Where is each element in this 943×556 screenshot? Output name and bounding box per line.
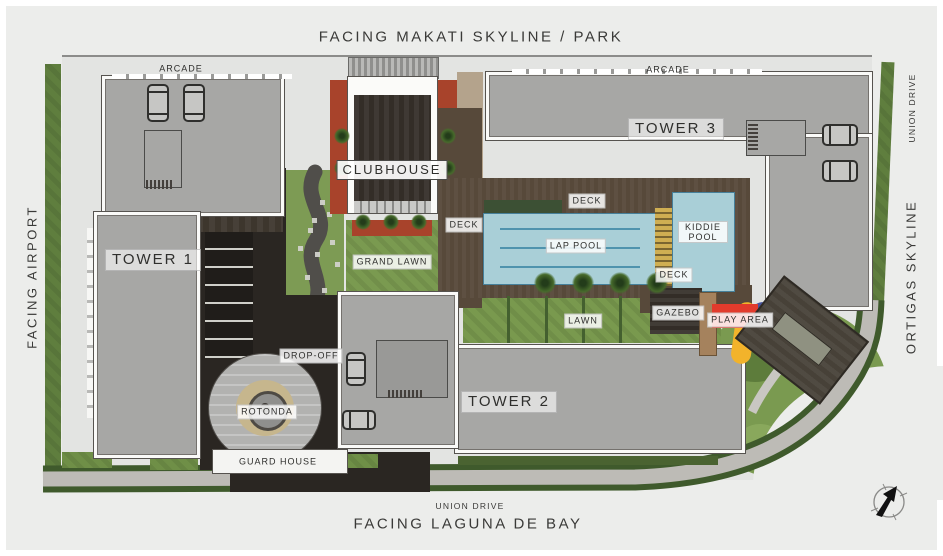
clubhouse-steps (354, 201, 431, 213)
ortigas-skyline-label: ORTIGAS SKYLINE (904, 200, 919, 354)
vehicle-icon (342, 410, 376, 430)
parking-stalls (205, 232, 253, 358)
tree-icon (411, 214, 427, 230)
lap-pool-label: LAP POOL (546, 239, 606, 254)
hedge-south (458, 456, 718, 465)
tree-icon (383, 214, 399, 230)
tower1-balcony-ticks (87, 228, 94, 418)
kiddie-pool-label: KIDDIE POOL (678, 221, 728, 243)
tree-icon (440, 128, 456, 144)
deck-south-label: DECK (655, 268, 692, 283)
pool-planter (484, 200, 562, 213)
union-drive-east-label: UNION DRIVE (907, 74, 917, 143)
lawn-label: LAWN (564, 314, 602, 329)
hedge (545, 296, 548, 343)
vehicle-icon (346, 352, 366, 386)
clubhouse-label: CLUBHOUSE (337, 160, 448, 180)
facing-makati-label: FACING MAKATI SKYLINE / PARK (319, 29, 624, 46)
hedge (507, 296, 510, 343)
tower3-ramp-hatch (748, 124, 758, 150)
deck-north-label: DECK (568, 194, 605, 209)
lobby-ramp-hatch (388, 390, 422, 398)
grand-lawn-label: GRAND LAWN (353, 255, 432, 270)
vehicle-icon (822, 160, 858, 182)
tree-icon (355, 214, 371, 230)
tower1-label: TOWER 1 (105, 249, 201, 271)
facing-airport-label: FACING AIRPORT (25, 205, 40, 349)
hedge (619, 296, 622, 343)
site-development-plan: ARCADE ARCADE TOWER 1 TOWER 2 TOWER 3 CL… (0, 0, 943, 556)
clubhouse-canopy (348, 57, 439, 79)
union-drive-south-label: UNION DRIVE (436, 501, 505, 511)
palm-tree-icon (534, 272, 556, 294)
tree-icon (334, 128, 350, 144)
play-area-label: PLAY AREA (707, 313, 773, 328)
tower1-ramp-hatch (146, 180, 174, 189)
lap-pool-lane (500, 228, 640, 230)
vehicle-icon (183, 84, 205, 122)
drop-off-label: DROP-OFF (280, 349, 343, 364)
planter-red-west (330, 80, 350, 214)
arcade-west-label: ARCADE (156, 63, 206, 76)
deck-west-label: DECK (445, 218, 482, 233)
rotonda-label: ROTONDA (237, 405, 297, 420)
clubhouse-roof (354, 95, 431, 201)
palm-tree-icon (609, 272, 631, 294)
green-patch (342, 454, 378, 468)
tower3-label: TOWER 3 (628, 118, 724, 140)
north-arrow-icon (865, 477, 913, 525)
lap-pool-lane (500, 266, 640, 268)
tower2-label: TOWER 2 (461, 391, 557, 413)
palm-tree-icon (572, 272, 594, 294)
vehicle-icon (147, 84, 169, 122)
arcade-east-label: ARCADE (643, 64, 693, 77)
gazebo-label: GAZEBO (652, 306, 704, 321)
vehicle-icon (822, 124, 858, 146)
facing-laguna-label: FACING LAGUNA DE BAY (354, 516, 583, 533)
arcade-colonnade-east (512, 69, 762, 74)
guard-house-label: GUARD HOUSE (236, 456, 320, 469)
